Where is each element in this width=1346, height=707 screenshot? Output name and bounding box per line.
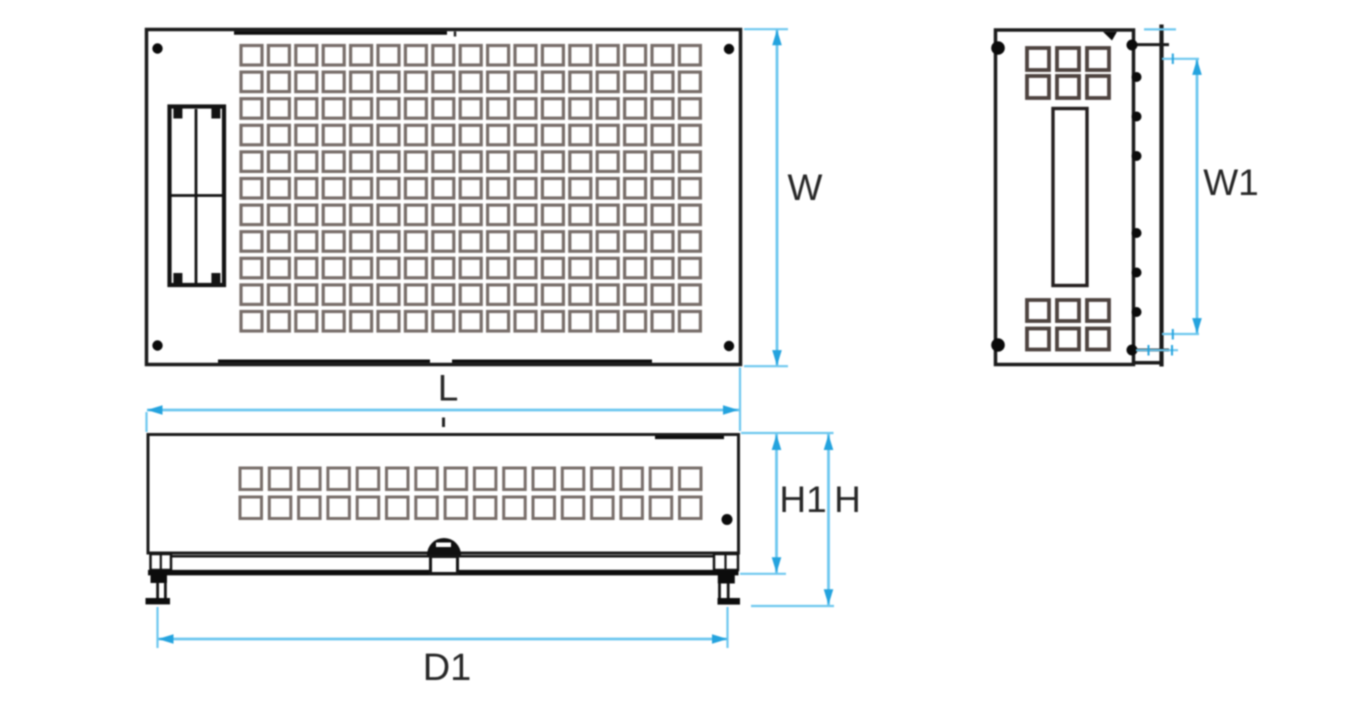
- svg-text:H1: H1: [779, 479, 826, 520]
- svg-text:L: L: [438, 368, 459, 409]
- svg-text:H: H: [834, 479, 861, 520]
- svg-text:W1: W1: [1203, 162, 1259, 203]
- svg-text:W: W: [788, 167, 823, 208]
- svg-text:D1: D1: [423, 647, 472, 689]
